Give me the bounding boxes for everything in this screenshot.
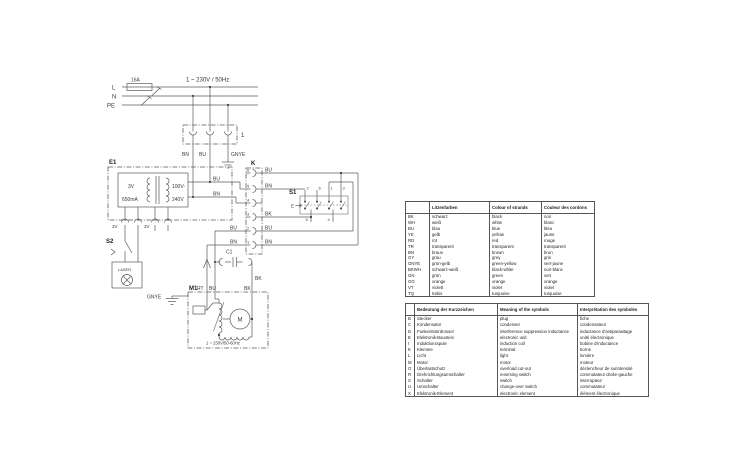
wire-label-bk: BK bbox=[244, 286, 251, 292]
connector-k: K 6 5 4 3 2 1 BU BN BK BU BN BU bbox=[230, 161, 272, 254]
e1-primary-max: 240V bbox=[172, 197, 184, 203]
wire-label-bk: BK bbox=[255, 276, 262, 282]
actuator-arrow-icon bbox=[111, 249, 115, 255]
primary-winding-icon bbox=[147, 178, 150, 202]
e1-label: E1 bbox=[109, 160, 117, 166]
table-row: BSteckerplugfiche bbox=[406, 316, 649, 323]
wiring-diagram-page: L N PE 16A 1 ~ 230V / 50Hz 1 bbox=[0, 0, 750, 472]
s1-terminal-number: 4 bbox=[328, 217, 331, 222]
table-cell: Elektronik-Element bbox=[415, 390, 498, 397]
column-header: Colour of strands bbox=[490, 202, 542, 214]
k-contact-number: 5 bbox=[247, 184, 250, 189]
wire-label-bn: BN bbox=[265, 240, 272, 246]
supply-label: 1 ~ 230V / 50Hz bbox=[186, 78, 229, 84]
wire-label-bn: BN bbox=[265, 184, 272, 190]
connector-1: 1 BN BU GNYE bbox=[182, 125, 246, 197]
column-header: Couleur des cordons bbox=[542, 202, 595, 214]
connector-1-label: 1 bbox=[241, 133, 245, 139]
s1-terminal-number: 1 bbox=[331, 186, 334, 191]
low-voltage-plugs: 3V 3V bbox=[112, 207, 172, 231]
table-cell: plug bbox=[498, 316, 578, 323]
circuit-schematic: L N PE 16A 1 ~ 230V / 50Hz 1 bbox=[0, 0, 750, 472]
s1-terminal-number: 3 bbox=[343, 186, 346, 191]
lamp-icon bbox=[122, 275, 133, 286]
switch-s2: S2 LASER bbox=[106, 231, 142, 288]
table-cell: electronic element bbox=[498, 390, 578, 397]
wire-label-bn: BN bbox=[230, 240, 237, 246]
wire-label-rt: RT bbox=[197, 286, 204, 292]
overload-protector-icon bbox=[193, 306, 205, 314]
plug-3v-label: 3V bbox=[112, 224, 118, 229]
column-header bbox=[406, 202, 430, 214]
s1-terminal-number: 6 bbox=[319, 186, 322, 191]
m1-rating: 1 ~ 230V/50-60Hz bbox=[206, 341, 240, 346]
table-row: OÜberlastschutzoverload cut-outdéclenche… bbox=[406, 366, 649, 372]
s1-label: S1 bbox=[289, 190, 297, 196]
header-row: LitzenfarbenColour of strandsCouleur des… bbox=[406, 202, 595, 214]
wire-label-bn: BN bbox=[213, 192, 220, 198]
wire-label-bk: BK bbox=[265, 212, 272, 218]
s1-terminal-number: 5 bbox=[306, 217, 309, 222]
table-cell: Stecker bbox=[415, 316, 498, 323]
inductor-icon bbox=[219, 303, 222, 333]
switch-s1: S1 2 6 1 3 bbox=[289, 186, 348, 223]
wire-label-bu: BU bbox=[209, 286, 216, 292]
table-cell: turquoise bbox=[490, 291, 542, 297]
secondary-winding-icon bbox=[166, 178, 169, 202]
column-header: Litzenfarben bbox=[430, 202, 490, 214]
s1-terminal-number: 2 bbox=[307, 186, 310, 191]
c1-label: C1 bbox=[226, 250, 233, 256]
e1-primary-min: 100V- bbox=[172, 184, 185, 190]
table-cell: interference suppression inductance bbox=[498, 328, 578, 334]
k-contact-icons bbox=[246, 170, 262, 249]
ground-icon bbox=[166, 296, 179, 305]
table-cell: TQ bbox=[406, 291, 430, 297]
table-row: RDrehrichtungsumschalterreversing switch… bbox=[406, 372, 649, 378]
capacitor-c1: C1 BK bbox=[214, 250, 262, 293]
k-contact-number: 4 bbox=[247, 198, 250, 203]
motor-m1: M1 RT BU BK M bbox=[188, 286, 268, 348]
wiring: GNYE bbox=[147, 172, 358, 305]
wire-label-bu: BU bbox=[265, 168, 272, 174]
column-header: Meaning of the symbols bbox=[498, 304, 578, 316]
table-cell: türkis bbox=[430, 291, 490, 297]
rail-label-l: L bbox=[112, 86, 116, 92]
wire-label-bu: BU bbox=[265, 226, 272, 232]
rail-label-pe: PE bbox=[107, 104, 115, 110]
socket-contact-icon bbox=[190, 125, 232, 135]
table-cell: B bbox=[406, 316, 415, 323]
motor-letter: M bbox=[238, 318, 243, 324]
k-contact-number: 1 bbox=[247, 240, 250, 245]
plug-3v-label: 3V bbox=[144, 224, 150, 229]
wire-label-bu: BU bbox=[230, 226, 237, 232]
laser-label: LASER bbox=[118, 267, 131, 272]
k-contact-number: 2 bbox=[247, 226, 250, 231]
k-contact-number: 3 bbox=[247, 212, 250, 217]
wire-label-bu: BU bbox=[199, 152, 206, 158]
transformer-e1: E1 3V 650mA 100V- 240V BU BN bbox=[108, 160, 232, 231]
e1-secondary-voltage: 3V bbox=[128, 184, 135, 190]
table-row: XElektronik-Elementelectronic elementélé… bbox=[406, 390, 649, 397]
power-rails: L N PE 16A 1 ~ 230V / 50Hz bbox=[107, 78, 258, 126]
table-cell: X bbox=[406, 390, 415, 397]
table-row: TQtürkisturquoiseturquoise bbox=[406, 291, 595, 297]
table-row: DFunkentstördrosselinterference suppress… bbox=[406, 328, 649, 334]
wire-label-gnye: GNYE bbox=[231, 152, 246, 158]
strand-colour-table: LitzenfarbenColour of strandsCouleur des… bbox=[405, 201, 595, 297]
rail-label-n: N bbox=[112, 95, 116, 101]
table-cell: élément électronique bbox=[578, 390, 649, 397]
header-row: Bedeutung der KurzzeichenMeaning of the … bbox=[406, 304, 649, 316]
s2-label: S2 bbox=[106, 239, 114, 245]
column-header: Interprétation des symboles bbox=[578, 304, 649, 316]
column-header bbox=[406, 304, 415, 316]
table-cell: turquoise bbox=[542, 291, 595, 297]
wire-label-gnye: GNYE bbox=[147, 295, 162, 301]
wire-label-bu: BU bbox=[213, 177, 220, 183]
e1-secondary-current: 650mA bbox=[122, 197, 139, 203]
s1-actuator-label: E bbox=[291, 204, 294, 209]
symbol-meaning-table: Bedeutung der KurzzeichenMeaning of the … bbox=[405, 303, 649, 397]
k-label: K bbox=[251, 161, 256, 167]
wire-label-bn: BN bbox=[182, 152, 189, 158]
table-cell: fiche bbox=[578, 316, 649, 323]
column-header: Bedeutung der Kurzzeichen bbox=[415, 304, 498, 316]
fuse-label: 16A bbox=[131, 78, 141, 84]
